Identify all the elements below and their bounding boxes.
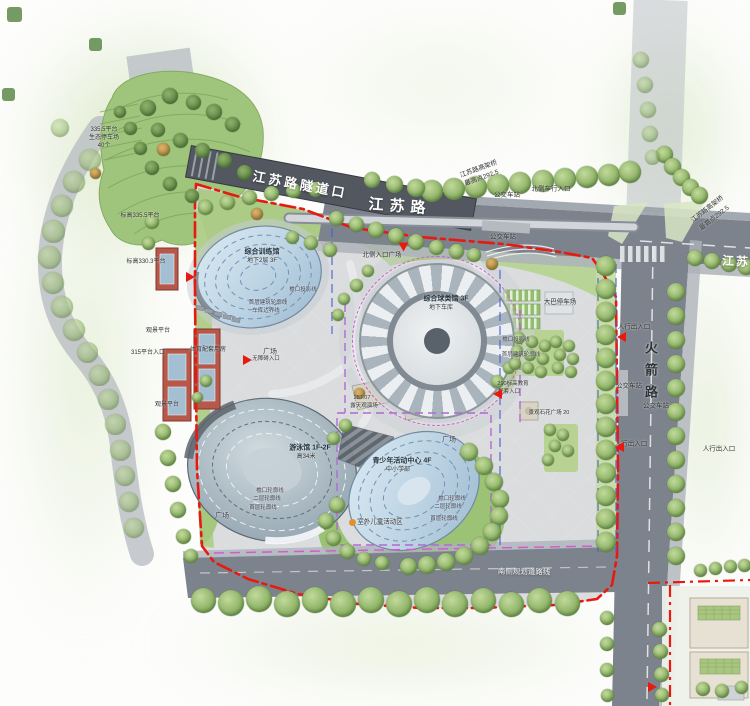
tree xyxy=(442,591,468,617)
tree xyxy=(302,587,328,613)
tree xyxy=(596,325,616,345)
autumn-tree xyxy=(251,208,263,220)
tree xyxy=(151,123,165,137)
tree xyxy=(563,340,575,352)
tree xyxy=(364,172,380,188)
tree xyxy=(598,164,620,186)
tree xyxy=(460,443,478,461)
tree xyxy=(527,588,552,613)
tree xyxy=(170,502,186,518)
leader-outline-2: 首层建筑轮廓线 xyxy=(502,353,541,359)
tree xyxy=(491,490,509,508)
tree xyxy=(437,553,455,571)
tree xyxy=(318,513,334,529)
leader-eave-1: 檐口投影线 xyxy=(289,288,317,294)
ball-hall-name: 综合球类馆 3F xyxy=(423,295,468,302)
tree xyxy=(286,231,299,244)
tree xyxy=(368,222,384,238)
tree xyxy=(449,244,464,259)
youth-center-sub: 中小学部 xyxy=(386,467,410,473)
tree xyxy=(471,537,489,555)
amphitheater-elev: 287.07 xyxy=(354,396,371,402)
tree xyxy=(217,153,232,168)
kids-area-label: 室外儿童活动区 xyxy=(357,520,403,527)
tree xyxy=(77,342,98,363)
ped-entrance-1: 人行出入口 xyxy=(618,325,651,332)
tree xyxy=(349,217,364,232)
tree xyxy=(645,150,660,165)
tree xyxy=(696,682,710,696)
training-hall-name: 综合训练馆 xyxy=(245,248,280,255)
viewing-platform-2: 观景平台 xyxy=(155,402,179,408)
tree xyxy=(195,143,210,158)
tree xyxy=(105,414,126,435)
tree xyxy=(600,611,614,625)
tree xyxy=(89,365,110,386)
tree xyxy=(652,622,667,637)
tree xyxy=(596,509,616,529)
autumn-tree xyxy=(486,258,498,270)
tree xyxy=(51,296,73,318)
tree xyxy=(237,165,252,180)
tree xyxy=(225,117,240,132)
accessible-entrance-arrow xyxy=(243,355,252,365)
tree xyxy=(98,389,119,410)
tree xyxy=(375,556,389,570)
leader-eave-3: 檐口轮廓线 xyxy=(256,489,284,495)
tree xyxy=(691,187,708,204)
tree xyxy=(542,454,554,466)
tree xyxy=(619,161,641,183)
tree xyxy=(475,457,493,475)
rocket-road-label: 火箭路 xyxy=(643,341,657,407)
leader-first-3: 首层轮廓线 xyxy=(249,506,277,512)
tree xyxy=(407,179,425,197)
tree xyxy=(142,237,155,250)
tree xyxy=(206,104,222,120)
tree xyxy=(640,102,656,118)
tree xyxy=(596,279,616,299)
north-plaza-entrance-arrow xyxy=(399,243,409,252)
sports-support-rooms: 体育配套用房 xyxy=(190,347,226,353)
leader-eave-4: 檐口轮廓线 xyxy=(438,497,466,503)
tree xyxy=(327,432,340,445)
tree xyxy=(42,220,65,243)
tree xyxy=(414,587,440,613)
tree xyxy=(596,371,616,391)
training-hall-floors: 地下2层 3F xyxy=(247,258,277,264)
tree xyxy=(191,588,216,613)
tree xyxy=(218,590,244,616)
tree xyxy=(596,532,616,552)
tree xyxy=(642,126,658,142)
tree xyxy=(596,417,616,437)
plaza-label-2: 广场 xyxy=(263,348,277,355)
tree xyxy=(38,246,61,269)
tree xyxy=(637,77,653,93)
tree xyxy=(63,319,85,341)
tree xyxy=(162,88,178,104)
elevation-335: 标高335.5平台 xyxy=(120,213,159,219)
tree xyxy=(667,523,685,541)
leader-garage-1: 车库边界线 xyxy=(252,309,280,315)
tree xyxy=(596,348,616,368)
tree xyxy=(735,681,748,694)
bus-parking: 大巴停车场 xyxy=(544,300,577,307)
tree xyxy=(535,366,547,378)
plaza-label-1: 广场 xyxy=(215,512,229,519)
tree xyxy=(186,95,201,110)
tree xyxy=(576,166,598,188)
tree xyxy=(667,451,685,469)
plaza-label-3: 广场 xyxy=(442,436,456,443)
tree xyxy=(134,142,147,155)
tree xyxy=(455,547,473,565)
site-plan-canvas: 江苏路隧道口江苏路江苏路火箭路江苏路高架桥最高点292.5江苏路高架桥最高点29… xyxy=(0,0,750,706)
parcel-entrance-arrow xyxy=(648,682,657,692)
tree xyxy=(332,309,344,321)
tree xyxy=(596,394,616,414)
tree xyxy=(114,106,126,118)
tree xyxy=(565,366,577,378)
tree xyxy=(338,293,350,305)
tree xyxy=(246,586,272,612)
tree xyxy=(667,283,685,301)
tree xyxy=(555,591,580,616)
tree xyxy=(550,336,562,348)
tree xyxy=(192,392,203,403)
tree xyxy=(329,211,344,226)
ped-entrance-arrow-2 xyxy=(615,442,624,452)
tree xyxy=(485,473,503,491)
tree xyxy=(667,307,685,325)
tree xyxy=(124,122,137,135)
ped-entrance-arrow-1 xyxy=(617,332,626,342)
tree xyxy=(386,591,412,617)
tree xyxy=(596,256,616,276)
tree xyxy=(350,279,363,292)
tree xyxy=(654,667,669,682)
north-vehicle-entrance: 北侧车行入口 xyxy=(532,187,571,194)
tree xyxy=(509,358,521,370)
tree xyxy=(738,559,750,572)
tree xyxy=(173,133,188,148)
tree xyxy=(667,331,685,349)
tree xyxy=(601,689,614,702)
tree xyxy=(704,253,720,269)
eco-parking-1: 335.5平台 xyxy=(90,127,117,133)
tree xyxy=(155,424,171,440)
leader-second-3: 二层轮廓线 xyxy=(253,497,281,503)
tree xyxy=(554,349,566,361)
tree xyxy=(552,362,564,374)
tree xyxy=(362,265,374,277)
shrub xyxy=(613,2,626,15)
tree xyxy=(522,362,534,374)
autumn-tree xyxy=(157,143,170,156)
tree xyxy=(220,195,235,210)
eco-parking-3: 40个 xyxy=(98,143,111,149)
south-road-label: 南侧规划道路线 xyxy=(498,568,551,577)
tree xyxy=(42,272,64,294)
tree xyxy=(549,440,561,452)
leader-outline-1: 首层建筑轮廓线 xyxy=(249,301,288,307)
tree xyxy=(51,119,69,137)
tree xyxy=(687,250,703,266)
tree xyxy=(600,663,614,677)
tree xyxy=(499,592,524,617)
stone-plaza: 景观石花广场 20 xyxy=(529,411,570,417)
tree xyxy=(557,429,569,441)
tree xyxy=(418,556,436,574)
tree xyxy=(633,52,649,68)
tree xyxy=(184,549,198,563)
tree xyxy=(471,588,496,613)
tree xyxy=(185,189,199,203)
tree xyxy=(694,564,707,577)
tree xyxy=(724,560,737,573)
tree xyxy=(667,427,685,445)
tree xyxy=(242,190,257,205)
tree xyxy=(667,379,685,397)
tree xyxy=(163,177,177,191)
tree xyxy=(176,529,191,544)
tree xyxy=(165,476,181,492)
ball-hall-floors: 地下车库 xyxy=(429,305,453,311)
platform-315-entrance: 315平台入口 xyxy=(131,350,165,356)
tree xyxy=(358,587,384,613)
tree xyxy=(667,499,685,517)
tree xyxy=(357,552,371,566)
tree xyxy=(115,466,135,486)
shrub xyxy=(7,7,22,22)
garage-boundary-bottom xyxy=(214,546,600,553)
elevation-330: 标高330.3平台 xyxy=(126,259,165,265)
leader-eave-2: 檐口投影线 xyxy=(502,338,530,344)
tree xyxy=(544,424,556,436)
tree xyxy=(596,440,616,460)
tree xyxy=(119,492,139,512)
platform-entrance-arrow xyxy=(186,272,195,282)
tree xyxy=(709,562,722,575)
shrub xyxy=(89,38,102,51)
tree xyxy=(124,518,144,538)
tree xyxy=(400,558,417,575)
natatorium-height: 高34米 xyxy=(297,454,316,460)
tree xyxy=(429,240,444,255)
tree xyxy=(145,161,159,175)
tree xyxy=(653,644,668,659)
tree xyxy=(329,497,345,513)
bus-stop-1: 公交车站 xyxy=(494,193,520,200)
tree xyxy=(600,637,614,651)
tree xyxy=(655,688,669,702)
tree xyxy=(326,531,341,546)
tree xyxy=(274,591,300,617)
tree xyxy=(667,403,685,421)
tree xyxy=(323,243,337,257)
tree xyxy=(140,100,156,116)
tree xyxy=(110,440,131,461)
kids-area-marker xyxy=(349,519,356,526)
tree xyxy=(340,544,355,559)
tree xyxy=(51,195,73,217)
tree xyxy=(596,302,616,322)
autumn-tree xyxy=(90,168,101,179)
tree xyxy=(667,355,685,373)
leader-first-4: 首层轮廓线 xyxy=(430,517,458,523)
tree xyxy=(596,463,616,483)
shrub xyxy=(2,88,15,101)
tree xyxy=(443,178,465,200)
tree xyxy=(467,248,481,262)
bus-stop-4: 公交车站 xyxy=(643,404,669,411)
jiangsu-road-label-east: 江苏路 xyxy=(722,255,750,270)
tree xyxy=(667,547,685,565)
tree xyxy=(667,475,685,493)
bus-stop-3: 公交车站 xyxy=(616,384,642,391)
tree xyxy=(330,591,356,617)
edu-entrance-1: 290标高教育 xyxy=(497,382,528,388)
natatorium-name: 游泳馆 1F-2F xyxy=(289,444,331,451)
accessible-entrance: 无障碍入口 xyxy=(252,357,280,363)
tree xyxy=(198,200,213,215)
tree xyxy=(567,353,579,365)
eco-parking-2: 生态停车场 xyxy=(89,135,119,141)
tree xyxy=(63,171,85,193)
tree xyxy=(408,234,424,250)
leader-second-4: 二层轮廓线 xyxy=(434,505,462,511)
ped-entrance-3: 人行出入口 xyxy=(703,447,736,454)
amphitheater-name: 露天观演场 xyxy=(350,404,378,410)
tree xyxy=(200,375,212,387)
parcel-blue-lines xyxy=(332,228,616,552)
viewing-platform-1: 观景平台 xyxy=(146,328,170,334)
tree xyxy=(386,176,403,193)
edu-entrance-arrow xyxy=(493,389,502,399)
tree xyxy=(715,684,729,698)
tree xyxy=(160,450,176,466)
tree xyxy=(596,486,616,506)
youth-center-name: 青少年活动中心 4F xyxy=(372,457,431,464)
tree xyxy=(562,445,574,457)
tree xyxy=(339,419,352,432)
bus-stop-2: 公交车站 xyxy=(490,235,516,242)
tree xyxy=(304,236,318,250)
north-entrance-plaza: 北侧入口广场 xyxy=(363,253,402,260)
